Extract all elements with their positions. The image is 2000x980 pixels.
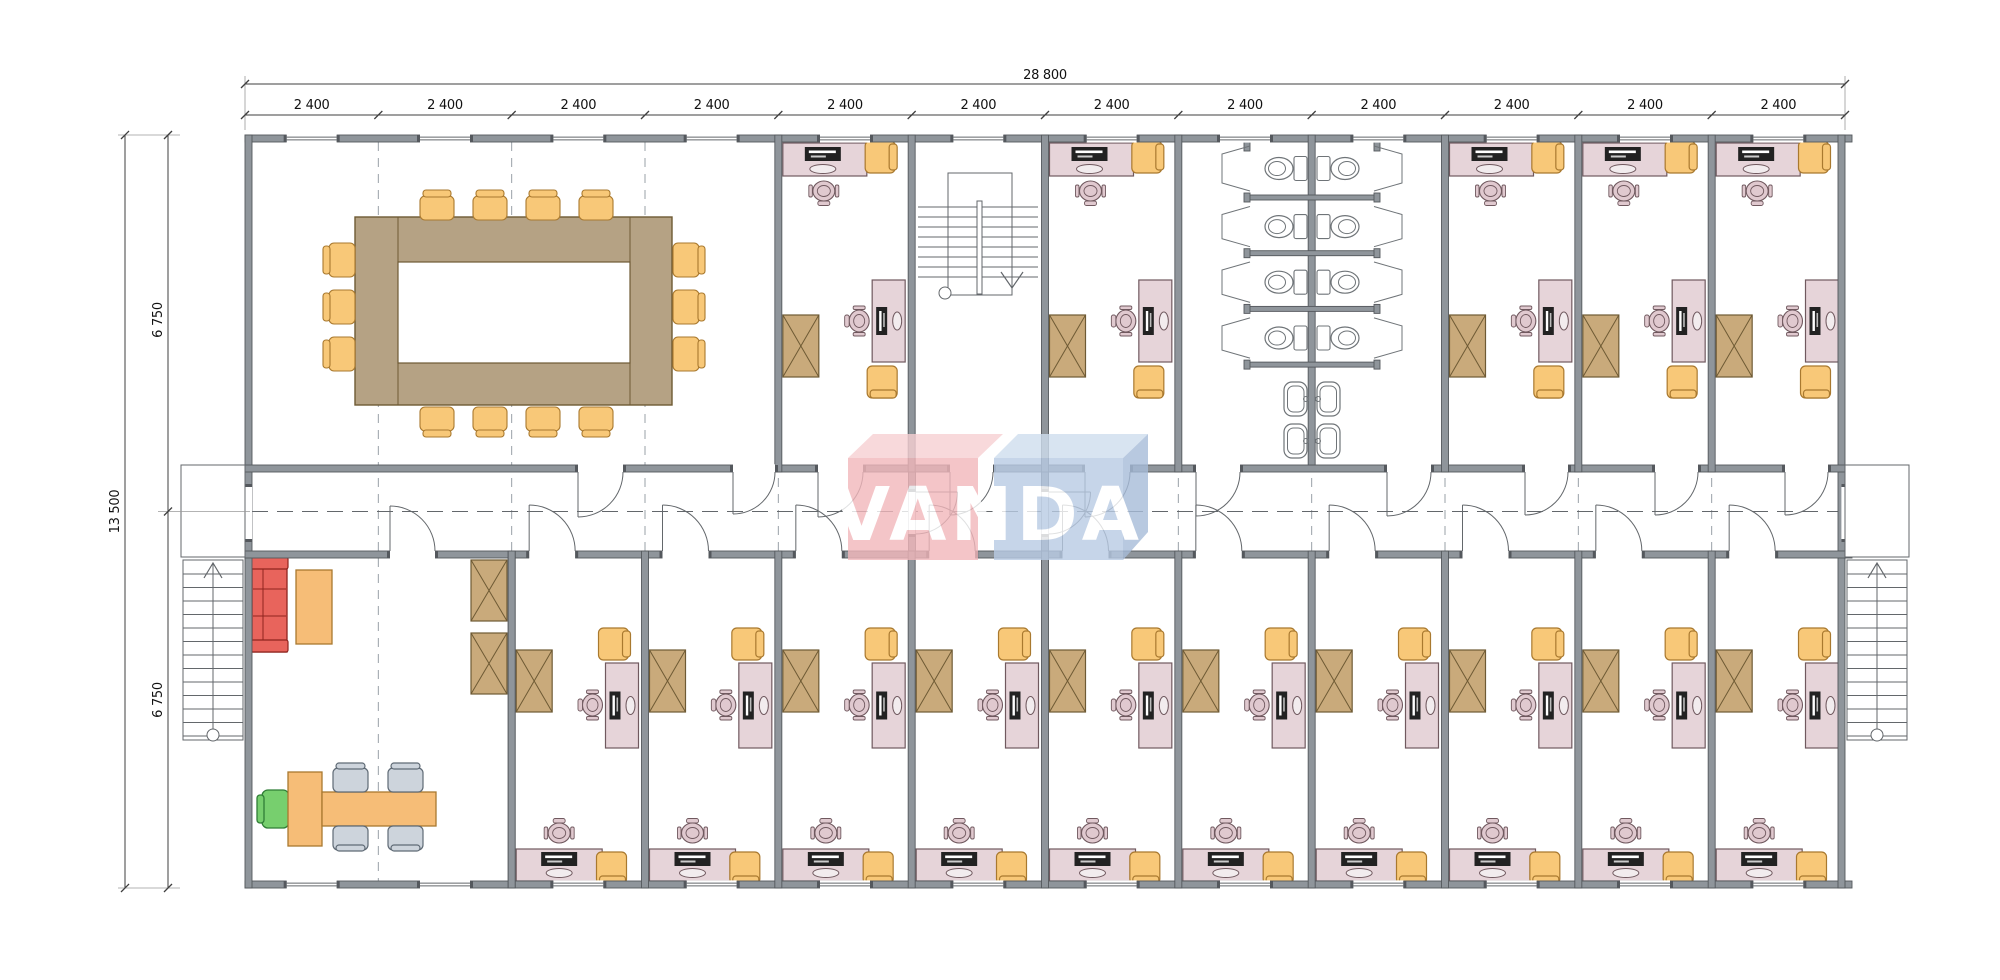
conference-chair <box>323 290 355 324</box>
internal-staircase <box>918 173 1038 299</box>
desk-chair <box>1778 306 1803 336</box>
door <box>1652 464 1701 515</box>
external-staircase <box>1845 465 1909 741</box>
conference-chair <box>579 190 613 220</box>
door <box>1193 464 1243 516</box>
desk-chair <box>711 690 736 720</box>
window <box>1484 134 1540 142</box>
window <box>1750 880 1806 888</box>
visitor-chair <box>333 826 368 851</box>
guest-chair <box>1130 852 1160 884</box>
desk-chair <box>578 690 603 720</box>
door <box>1384 464 1434 516</box>
storage-cabinet <box>471 560 507 621</box>
guest-chair <box>597 852 627 884</box>
computer <box>1676 692 1687 720</box>
desk-device <box>1472 147 1508 161</box>
visitor-chair <box>333 763 368 792</box>
wc-toilet <box>1317 157 1359 181</box>
desk-chair <box>1111 306 1136 336</box>
door <box>1460 505 1512 559</box>
wc-toilet <box>1265 157 1307 181</box>
guest-chair <box>867 366 897 398</box>
storage-cabinet <box>1050 315 1086 377</box>
guest-chair <box>1397 852 1427 884</box>
door <box>387 506 438 559</box>
storage-cabinet <box>783 315 819 377</box>
toilet-stall <box>1222 318 1250 358</box>
window <box>284 134 340 142</box>
guest-chair <box>1532 628 1564 660</box>
window <box>684 880 740 888</box>
door <box>1726 505 1778 559</box>
desk-chair <box>944 819 974 844</box>
window <box>417 880 473 888</box>
dimension-label: 2 400 <box>1494 98 1530 113</box>
door <box>526 505 578 559</box>
guest-chair <box>999 628 1031 660</box>
desk-chair <box>1511 690 1536 720</box>
guest-chair <box>865 141 897 173</box>
visitor-chair <box>388 826 423 851</box>
window <box>950 134 1006 142</box>
door <box>1593 505 1645 559</box>
guest-chair <box>732 628 764 660</box>
window <box>550 880 606 888</box>
guest-chair <box>730 852 760 884</box>
desk-chair <box>678 819 708 844</box>
conference-chair <box>526 407 560 437</box>
desk-chair <box>1778 690 1803 720</box>
guest-chair <box>1530 852 1560 884</box>
desk-device <box>1738 147 1774 161</box>
guest-chair <box>1667 366 1697 398</box>
external-staircase <box>181 465 245 741</box>
toilet-stall <box>1374 146 1402 191</box>
window <box>1484 880 1540 888</box>
desk-device <box>1475 852 1511 866</box>
dimension-label: 2 400 <box>1094 98 1130 113</box>
dimension-label: 2 400 <box>427 98 463 113</box>
desk-chair <box>1378 690 1403 720</box>
dimension-label: 6 750 <box>151 302 166 338</box>
desk-chair <box>1645 306 1670 336</box>
conference-chair <box>673 337 705 371</box>
conference-chair <box>579 407 613 437</box>
window <box>817 134 873 142</box>
conference-chair <box>526 190 560 220</box>
guest-chair <box>1263 852 1293 884</box>
guest-chair <box>1799 628 1831 660</box>
conference-chair <box>673 290 705 324</box>
conference-chair <box>420 190 454 220</box>
desk-device <box>805 147 841 161</box>
dimension-label: 2 400 <box>694 98 730 113</box>
guest-chair <box>1132 141 1164 173</box>
storage-cabinet <box>471 633 507 694</box>
conference-chair <box>473 190 507 220</box>
door <box>1193 505 1245 559</box>
green-armchair <box>257 790 289 828</box>
window <box>1084 134 1140 142</box>
conference-chair <box>473 407 507 437</box>
dimension-label: 2 400 <box>960 98 996 113</box>
guest-chair <box>1799 141 1831 173</box>
storage-cabinet <box>1183 650 1219 712</box>
storage-cabinet <box>916 650 952 712</box>
computer <box>1276 692 1287 720</box>
storage-cabinet <box>783 650 819 712</box>
computer <box>743 692 754 720</box>
window <box>1350 880 1406 888</box>
computer <box>876 692 887 720</box>
wc-toilet <box>1265 326 1307 350</box>
desk-chair <box>1344 819 1374 844</box>
desk-chair <box>1245 690 1270 720</box>
guest-chair <box>1132 628 1164 660</box>
desk-device <box>941 852 977 866</box>
conference-table <box>355 217 672 405</box>
window <box>684 134 740 142</box>
door <box>1782 464 1831 515</box>
storage-cabinet <box>1450 315 1486 377</box>
guest-chair <box>1534 366 1564 398</box>
desk-device <box>808 852 844 866</box>
storage-cabinet <box>1583 650 1619 712</box>
computer <box>1543 692 1554 720</box>
desk-chair <box>1611 819 1641 844</box>
dimension-label: 2 400 <box>1360 98 1396 113</box>
desk-chair <box>1511 306 1536 336</box>
door <box>575 464 626 517</box>
computer <box>1810 307 1821 335</box>
desk-device <box>1208 852 1244 866</box>
desk-device <box>1075 852 1111 866</box>
storage-cabinet <box>516 650 552 712</box>
desk-chair <box>1078 819 1108 844</box>
desk-chair <box>544 819 574 844</box>
guest-chair <box>865 628 897 660</box>
dimension-label: 6 750 <box>151 682 166 718</box>
desk-chair <box>1742 181 1772 206</box>
computer <box>1676 307 1687 335</box>
desk-chair <box>1111 690 1136 720</box>
desk-chair <box>1744 819 1774 844</box>
desk-chair <box>1211 819 1241 844</box>
window <box>1750 134 1806 142</box>
toilet-stall <box>1374 262 1402 302</box>
desk-device <box>1608 852 1644 866</box>
window <box>284 880 340 888</box>
watermark-text: VANDA <box>833 472 1143 558</box>
window <box>1350 134 1406 142</box>
desk-chair <box>1645 690 1670 720</box>
desk-chair <box>845 306 870 336</box>
computer <box>1143 307 1154 335</box>
guest-chair <box>1532 141 1564 173</box>
desk-chair <box>1476 181 1506 206</box>
desk-device <box>1341 852 1377 866</box>
desk-device <box>1605 147 1641 161</box>
window <box>950 880 1006 888</box>
wc-toilet <box>1317 326 1359 350</box>
desk-device <box>1072 147 1108 161</box>
toilet-stall <box>1374 318 1402 358</box>
door <box>660 505 712 559</box>
desk-chair <box>809 181 839 206</box>
guest-chair <box>863 852 893 884</box>
guest-chair <box>1265 628 1297 660</box>
dimension-label: 13 500 <box>108 490 123 534</box>
computer <box>610 692 621 720</box>
wc-toilet <box>1265 270 1307 294</box>
dimension-label: 28 800 <box>1023 68 1067 83</box>
desk-device <box>675 852 711 866</box>
desk-chair <box>978 690 1003 720</box>
dimension-label: 2 400 <box>1227 98 1263 113</box>
window <box>1217 880 1273 888</box>
sofa <box>251 557 288 652</box>
toilet-stall <box>1222 262 1250 302</box>
desk-device <box>541 852 577 866</box>
conference-chair <box>420 407 454 437</box>
floor-plan-sheet: 28 8002 4002 4002 4002 4002 4002 4002 40… <box>0 0 2000 980</box>
desk-chair <box>1478 819 1508 844</box>
storage-cabinet <box>1583 315 1619 377</box>
computer <box>876 307 887 335</box>
storage-cabinet <box>1716 650 1752 712</box>
window <box>1617 880 1673 888</box>
meeting-room <box>323 190 705 437</box>
desk-chair <box>845 690 870 720</box>
dimension-label: 2 400 <box>1627 98 1663 113</box>
wc-toilet <box>1317 215 1359 239</box>
door <box>730 464 778 514</box>
storage-cabinet <box>1716 315 1752 377</box>
coffee-table <box>296 570 332 644</box>
desk-device <box>1741 852 1777 866</box>
watermark: VANDA <box>833 434 1148 560</box>
conference-chair <box>323 337 355 371</box>
desk-chair <box>1076 181 1106 206</box>
dimension-label: 2 400 <box>560 98 596 113</box>
guest-chair <box>1665 628 1697 660</box>
window <box>1217 134 1273 142</box>
dimension-label: 2 400 <box>1760 98 1796 113</box>
storage-cabinet <box>1316 650 1352 712</box>
guest-chair <box>1134 366 1164 398</box>
vanda-watermark: VANDA <box>833 434 1148 560</box>
toilet-stall <box>1374 207 1402 247</box>
computer <box>1410 692 1421 720</box>
wc-toilet <box>1317 270 1359 294</box>
floor-plan: 28 8002 4002 4002 4002 4002 4002 4002 40… <box>0 0 2000 980</box>
desk-chair <box>811 819 841 844</box>
computer <box>1810 692 1821 720</box>
wc-toilet <box>1265 215 1307 239</box>
storage-cabinet <box>1050 650 1086 712</box>
conference-chair <box>323 243 355 277</box>
toilet-stall <box>1222 146 1250 191</box>
computer <box>1010 692 1021 720</box>
computer <box>1143 692 1154 720</box>
door <box>1522 464 1571 515</box>
reception-room <box>251 557 436 851</box>
computer <box>1543 307 1554 335</box>
guest-chair <box>1801 366 1831 398</box>
dimension-label: 2 400 <box>827 98 863 113</box>
door <box>1326 505 1378 559</box>
guest-chair <box>1797 852 1827 884</box>
guest-chair <box>1399 628 1431 660</box>
window <box>1617 134 1673 142</box>
storage-cabinet <box>1450 650 1486 712</box>
window <box>550 134 606 142</box>
guest-chair <box>1663 852 1693 884</box>
conference-chair <box>673 243 705 277</box>
dimension-label: 2 400 <box>294 98 330 113</box>
window <box>1084 880 1140 888</box>
window <box>817 880 873 888</box>
guest-chair <box>997 852 1027 884</box>
guest-chair <box>1665 141 1697 173</box>
storage-cabinet <box>650 650 686 712</box>
guest-chair <box>599 628 631 660</box>
desk-chair <box>1609 181 1639 206</box>
toilet-stall <box>1222 207 1250 247</box>
visitor-chair <box>388 763 423 792</box>
window <box>417 134 473 142</box>
